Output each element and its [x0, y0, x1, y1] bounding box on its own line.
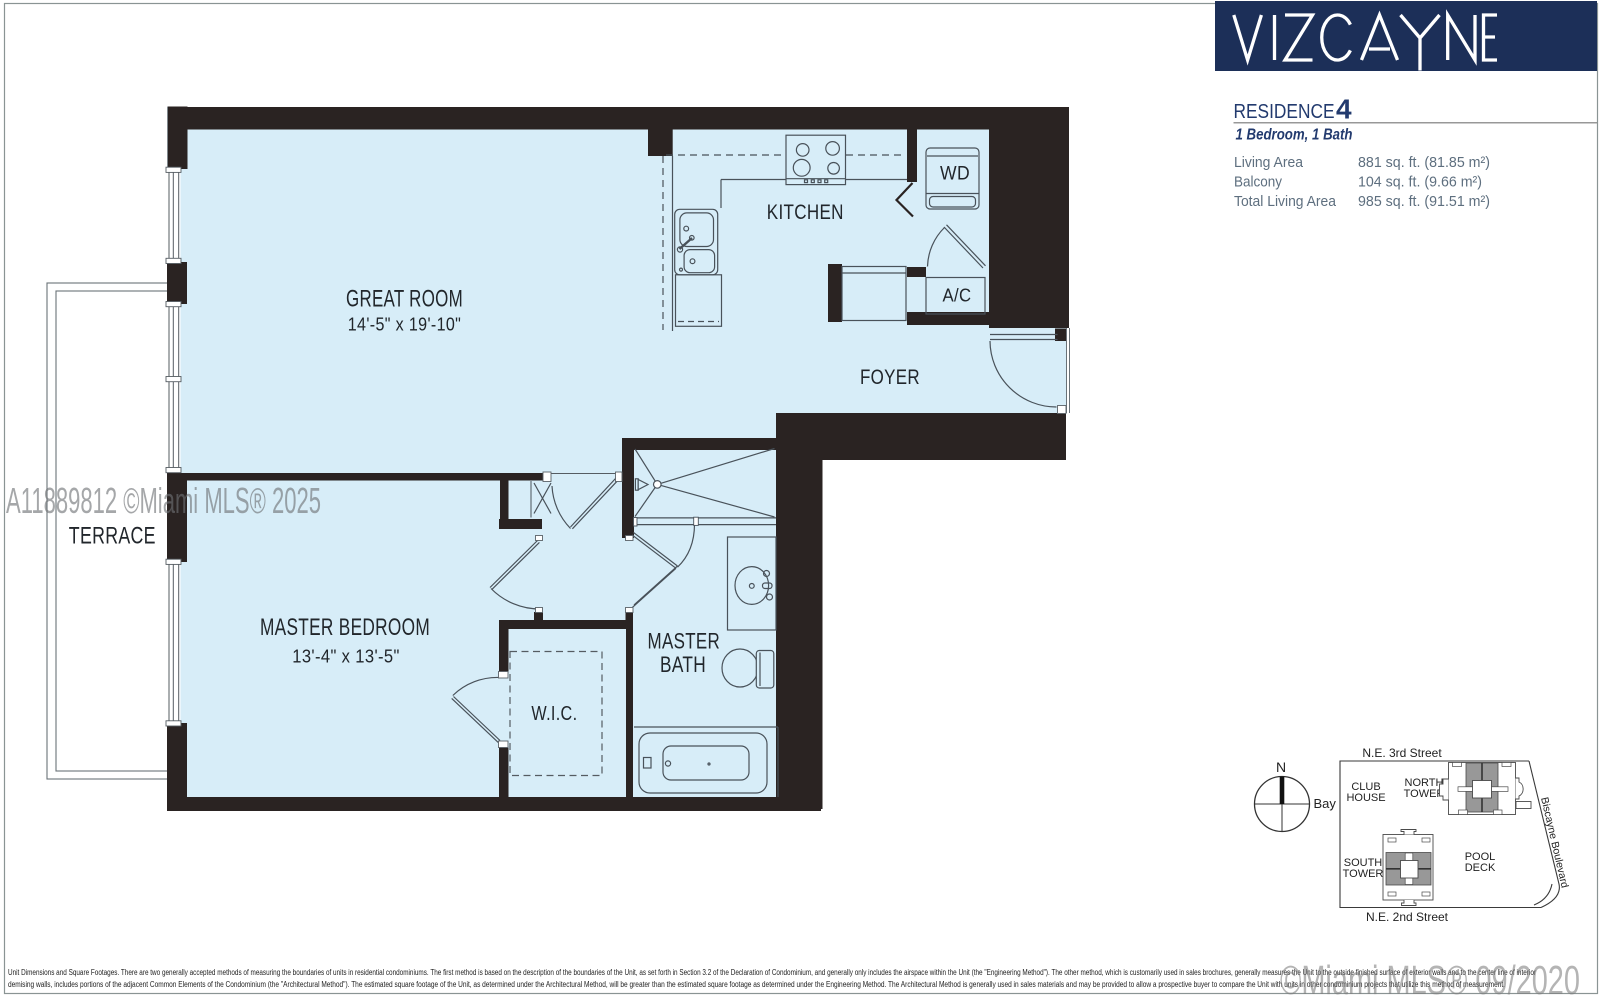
svg-text:A11889812 ©Miami MLS® 2025: A11889812 ©Miami MLS® 2025 — [6, 480, 321, 521]
svg-text:985 sq. ft. (91.51 m²): 985 sq. ft. (91.51 m²) — [1358, 193, 1490, 210]
svg-text:WD: WD — [940, 163, 970, 185]
svg-text:881 sq. ft. (81.85 m²): 881 sq. ft. (81.85 m²) — [1358, 154, 1490, 171]
svg-text:HOUSE: HOUSE — [1346, 792, 1385, 804]
svg-text:MASTER BEDROOM: MASTER BEDROOM — [260, 614, 430, 641]
svg-text:1 Bedroom, 1 Bath: 1 Bedroom, 1 Bath — [1236, 127, 1353, 144]
svg-text:13'-4" x 13'-5": 13'-4" x 13'-5" — [292, 647, 400, 667]
svg-text:©Miami MLS® 09/2020: ©Miami MLS® 09/2020 — [1280, 957, 1580, 1001]
svg-text:4: 4 — [1336, 94, 1352, 125]
svg-text:MASTER: MASTER — [648, 629, 721, 654]
svg-text:N.E. 2nd Street: N.E. 2nd Street — [1366, 910, 1449, 924]
svg-text:TOWER: TOWER — [1404, 788, 1445, 800]
svg-text:DECK: DECK — [1465, 862, 1496, 874]
svg-text:14'-5" x 19'-10": 14'-5" x 19'-10" — [348, 315, 462, 335]
svg-text:104 sq. ft. (9.66 m²): 104 sq. ft. (9.66 m²) — [1358, 174, 1482, 191]
svg-text:TOWER: TOWER — [1343, 868, 1384, 880]
svg-text:BATH: BATH — [660, 652, 706, 677]
svg-text:FOYER: FOYER — [860, 365, 920, 389]
svg-text:TERRACE: TERRACE — [69, 523, 156, 550]
svg-text:Balcony: Balcony — [1234, 174, 1282, 191]
svg-text:N.E. 3rd Street: N.E. 3rd Street — [1362, 746, 1442, 760]
svg-text:W.I.C.: W.I.C. — [531, 703, 577, 725]
svg-text:Bay: Bay — [1314, 796, 1337, 811]
svg-text:A/C: A/C — [943, 286, 972, 306]
svg-text:Total Living Area: Total Living Area — [1234, 193, 1337, 210]
svg-text:GREAT ROOM: GREAT ROOM — [346, 286, 463, 313]
svg-text:RESIDENCE: RESIDENCE — [1234, 101, 1335, 123]
svg-text:KITCHEN: KITCHEN — [767, 200, 844, 224]
svg-text:N: N — [1276, 759, 1286, 775]
svg-text:Living Area: Living Area — [1234, 154, 1304, 171]
